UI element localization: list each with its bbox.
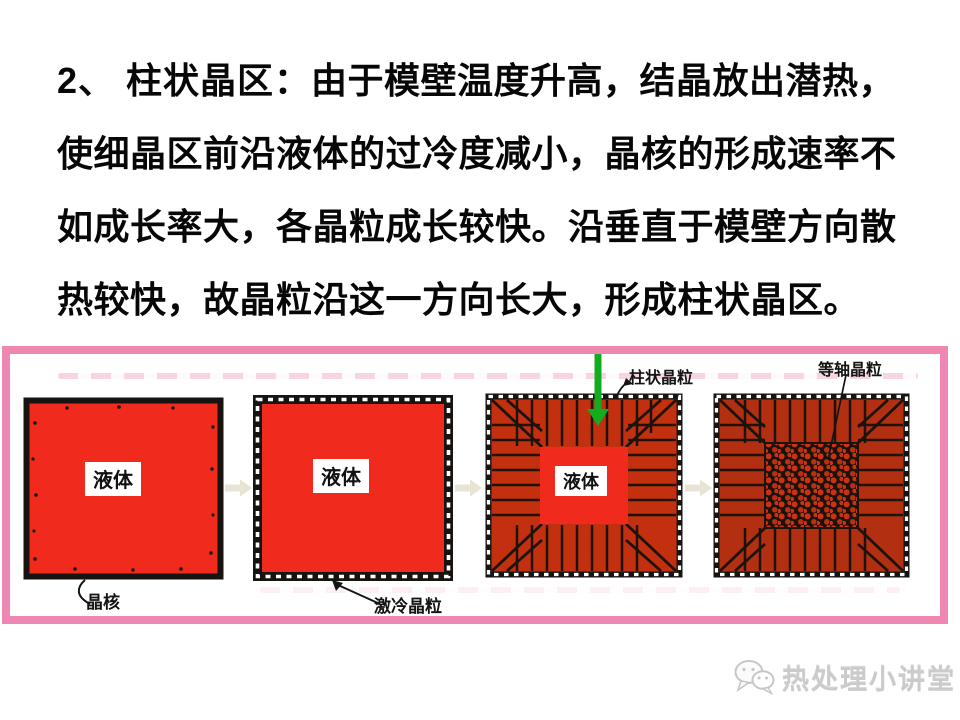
flow-arrow-1-icon (225, 478, 253, 498)
liquid-label: 液体 (563, 471, 600, 492)
term-lead: 2、 柱状晶区： (57, 60, 311, 101)
flow-arrow-2-icon (455, 478, 483, 498)
watermark-text: 热处理小讲堂 (782, 658, 956, 697)
text-line-3: 如成长率大，各晶粒成长较快。沿垂直于模壁方向散 (57, 190, 917, 263)
scan-artifact-band (58, 373, 918, 379)
liquid-label: 液体 (321, 465, 362, 489)
watermark: 热处理小讲堂 (733, 652, 956, 702)
columnar-grains-leader-line (608, 378, 634, 402)
body-text: 2、 柱状晶区：由于模壁温度升高，结晶放出潜热， 使细晶区前沿液体的过冷度减小，… (57, 44, 917, 336)
text-line-1-rest: 由于模壁温度升高，结晶放出潜热， (311, 60, 895, 101)
chill-grains-leader-line (330, 580, 385, 608)
figure-frame: 液体 液体 (2, 346, 948, 624)
text-line-1: 2、 柱状晶区：由于模壁温度升高，结晶放出潜热， (57, 44, 917, 117)
text-line-4: 热较快，故晶粒沿这一方向长大，形成柱状晶区。 (57, 263, 917, 336)
stage-2-diagram: 液体 (253, 395, 453, 581)
liquid-label: 液体 (93, 468, 134, 492)
nuclei-leader-line (72, 578, 102, 608)
annotation-columnar-grains: 柱状晶粒 (629, 364, 693, 388)
stage-3-diagram: 液体 (485, 393, 683, 578)
text-line-2: 使细晶区前沿液体的过冷度减小，晶核的形成速率不 (57, 117, 917, 190)
stage-2-chill-grains: 液体 (253, 395, 453, 581)
green-down-arrow-icon (587, 354, 609, 427)
stage-1-diagram: 液体 (23, 397, 224, 580)
stage-3-columnar-grains: 液体 (485, 393, 683, 578)
equiaxed-grains-leader-line (810, 372, 854, 464)
stage-1-nuclei: 液体 (23, 397, 224, 580)
flow-arrow-3-icon (685, 478, 713, 498)
wechat-icon (733, 659, 775, 695)
